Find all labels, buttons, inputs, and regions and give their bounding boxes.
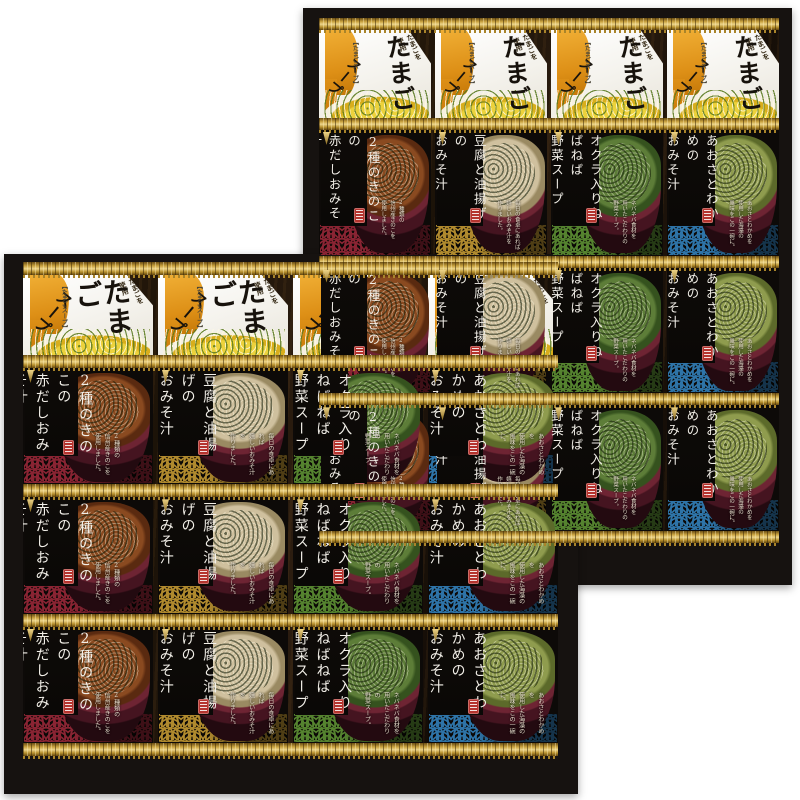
product-name: 2種のきのこの 赤だしおみそ汁 bbox=[23, 631, 95, 715]
product-description: 毎日の食卓にあれば 嬉しいおみそ汁を 作りました。 bbox=[494, 200, 520, 250]
red-seal-stamp bbox=[702, 346, 713, 361]
product-description: ネバネバ食材を 用いたこだわりの 野菜スープ。 bbox=[362, 433, 400, 480]
product-description: 2種類の 信州産きのこを 使用しました。 bbox=[378, 200, 404, 250]
red-seal-stamp bbox=[354, 208, 365, 223]
tamago-soup-row: 国産の たまごを 使用たまごスープ【たまごスープ】国産の たまごを 使用たまごス… bbox=[319, 30, 779, 118]
bracket-label: 【たまごスープ】 bbox=[582, 39, 591, 87]
gold-trim-band bbox=[319, 393, 779, 405]
miso-packet-akadashi-kinoko: 2種のきのこの 赤だしおみそ汁2種類の 信州産きのこを 使用しました。 bbox=[319, 130, 431, 256]
product-name: 2種のきのこの 赤だしおみそ汁 bbox=[319, 272, 382, 363]
bracket-label: 【たまごスープ】 bbox=[350, 39, 359, 87]
product-name: 豆腐と油揚げの おみそ汁 bbox=[158, 373, 219, 457]
product-description: 2種類の 信州産きのこを 使用しました。 bbox=[92, 562, 121, 609]
miso-packet-akadashi-kinoko: 2種のきのこの 赤だしおみそ汁2種類の 信州産きのこを 使用しました。 bbox=[23, 368, 153, 484]
red-seal-stamp bbox=[702, 483, 713, 498]
tamago-title: たまご bbox=[384, 33, 416, 113]
miso-packet-okra-nebaneba-yasai: オクラ入りねばねば 野菜スープネバネバ食材を 用いたこだわりの 野菜スープ。 bbox=[551, 405, 663, 531]
product-name: オクラ入りねばねば 野菜スープ bbox=[293, 373, 354, 457]
bracket-label: 【たまごスープ】 bbox=[698, 39, 707, 87]
product-name: 豆腐と油揚げの おみそ汁 bbox=[158, 502, 219, 586]
tamago-soup-packet: 国産の たまごを 使用たまごスープ【たまごスープ】 bbox=[23, 275, 153, 355]
gold-trim-band bbox=[319, 531, 779, 543]
miso-soup-row: 2種のきのこの 赤だしおみそ汁2種類の 信州産きのこを 使用しました。豆腐と油揚… bbox=[23, 497, 558, 613]
gold-trim-band bbox=[23, 355, 558, 368]
gold-trim-band bbox=[319, 118, 779, 130]
miso-packet-aosa-wakame: あおさとわかめの おみそ汁あおさとわかめを 使用した海藻の 風味をこの一碗に。 bbox=[667, 130, 779, 256]
tamago-title: たまご bbox=[500, 33, 532, 113]
red-seal-stamp bbox=[63, 569, 74, 584]
red-seal-stamp bbox=[63, 699, 74, 714]
miso-packet-tofu-aburaage: 豆腐と油揚げの おみそ汁毎日の食卓にあれば 嬉しいおみそ汁を 作りました。 bbox=[158, 627, 288, 743]
product-description: 毎日の食卓にあれば 嬉しいおみそ汁を 作りました。 bbox=[494, 476, 520, 526]
red-seal-stamp bbox=[468, 699, 479, 714]
tamago-title: たまご bbox=[616, 33, 648, 113]
miso-packet-aosa-wakame: あおさとわかめの おみそ汁あおさとわかめを 使用した海藻の 風味をこの一碗に。 bbox=[428, 627, 558, 743]
red-seal-stamp bbox=[198, 699, 209, 714]
red-seal-stamp bbox=[63, 440, 74, 455]
product-description: ネバネバ食材を 用いたこだわりの 野菜スープ。 bbox=[610, 200, 636, 250]
bracket-label: 【たまごスープ】 bbox=[59, 283, 68, 331]
red-seal-stamp bbox=[333, 569, 344, 584]
product-name: あおさとわかめの おみそ汁 bbox=[428, 631, 489, 715]
product-description: ネバネバ食材を 用いたこだわりの 野菜スープ。 bbox=[362, 692, 400, 739]
miso-packet-aosa-wakame: あおさとわかめの おみそ汁あおさとわかめを 使用した海藻の 風味をこの一碗に。 bbox=[667, 268, 779, 394]
freeze-dried-soup-gift-set-photo: 国産の たまごを 使用たまごスープ【たまごスープ】国産の たまごを 使用たまごス… bbox=[0, 0, 800, 800]
product-description: 毎日の食卓にあれば 嬉しいおみそ汁を 作りました。 bbox=[227, 433, 275, 480]
product-description: あおさとわかめを 使用した海藻の 風味をこの一碗に。 bbox=[497, 433, 545, 480]
miso-packet-tofu-aburaage: 豆腐と油揚げの おみそ汁毎日の食卓にあれば 嬉しいおみそ汁を 作りました。 bbox=[435, 130, 547, 256]
tamago-soup-packet: 国産の たまごを 使用たまごスープ【たまごスープ】 bbox=[551, 30, 663, 118]
gold-trim-band bbox=[319, 18, 779, 30]
miso-packet-okra-nebaneba-yasai: オクラ入りねばねば 野菜スープネバネバ食材を 用いたこだわりの 野菜スープ。 bbox=[551, 268, 663, 394]
miso-packet-okra-nebaneba-yasai: オクラ入りねばねば 野菜スープネバネバ食材を 用いたこだわりの 野菜スープ。 bbox=[293, 627, 423, 743]
product-description: あおさとわかめを 使用した海藻の 風味をこの一碗に。 bbox=[497, 692, 545, 739]
miso-packet-aosa-wakame: あおさとわかめの おみそ汁あおさとわかめを 使用した海藻の 風味をこの一碗に。 bbox=[667, 405, 779, 531]
miso-packet-tofu-aburaage: 豆腐と油揚げの おみそ汁毎日の食卓にあれば 嬉しいおみそ汁を 作りました。 bbox=[158, 497, 288, 613]
gold-trim-band bbox=[23, 262, 558, 275]
product-name: 2種のきのこの 赤だしおみそ汁 bbox=[23, 373, 95, 457]
tamago-soup-packet: 国産の たまごを 使用たまごスープ【たまごスープ】 bbox=[667, 30, 779, 118]
tamago-title: たまご bbox=[72, 277, 134, 355]
miso-packet-tofu-aburaage: 豆腐と油揚げの おみそ汁毎日の食卓にあれば 嬉しいおみそ汁を 作りました。 bbox=[158, 368, 288, 484]
red-seal-stamp bbox=[333, 440, 344, 455]
product-description: 2種類の 信州産きのこを 使用しました。 bbox=[378, 476, 404, 526]
red-seal-stamp bbox=[198, 569, 209, 584]
bracket-label: 【たまごスープ】 bbox=[194, 283, 203, 331]
gold-trim-band bbox=[23, 743, 558, 756]
product-name: あおさとわかめの おみそ汁 bbox=[428, 373, 489, 457]
product-description: あおさとわかめを 使用した海藻の 風味をこの一碗に。 bbox=[726, 200, 752, 250]
miso-packet-akadashi-kinoko: 2種のきのこの 赤だしおみそ汁2種類の 信州産きのこを 使用しました。 bbox=[23, 627, 153, 743]
red-seal-stamp bbox=[586, 346, 597, 361]
miso-soup-row: 2種のきのこの 赤だしおみそ汁2種類の 信州産きのこを 使用しました。豆腐と油揚… bbox=[319, 130, 779, 256]
red-seal-stamp bbox=[586, 208, 597, 223]
product-description: 2種類の 信州産きのこを 使用しました。 bbox=[92, 692, 121, 739]
product-description: ネバネバ食材を 用いたこだわりの 野菜スープ。 bbox=[610, 338, 636, 388]
product-name: オクラ入りねばねば 野菜スープ bbox=[293, 631, 354, 715]
product-description: 毎日の食卓にあれば 嬉しいおみそ汁を 作りました。 bbox=[227, 562, 275, 609]
miso-packet-okra-nebaneba-yasai: オクラ入りねばねば 野菜スープネバネバ食材を 用いたこだわりの 野菜スープ。 bbox=[551, 130, 663, 256]
red-seal-stamp bbox=[586, 483, 597, 498]
product-description: ネバネバ食材を 用いたこだわりの 野菜スープ。 bbox=[610, 476, 636, 526]
gold-trim-band bbox=[23, 614, 558, 627]
red-seal-stamp bbox=[468, 440, 479, 455]
red-seal-stamp bbox=[702, 208, 713, 223]
tamago-soup-packet: 国産の たまごを 使用たまごスープ【たまごスープ】 bbox=[319, 30, 431, 118]
red-seal-stamp bbox=[198, 440, 209, 455]
tamago-soup-packet: 国産の たまごを 使用たまごスープ【たまごスープ】 bbox=[158, 275, 288, 355]
tamago-soup-packet: 国産の たまごを 使用たまごスープ【たまごスープ】 bbox=[435, 30, 547, 118]
product-description: 2種類の 信州産きのこを 使用しました。 bbox=[92, 433, 121, 480]
product-name: 2種のきのこの 赤だしおみそ汁 bbox=[23, 502, 95, 586]
red-seal-stamp bbox=[470, 208, 481, 223]
miso-packet-akadashi-kinoko: 2種のきのこの 赤だしおみそ汁2種類の 信州産きのこを 使用しました。 bbox=[23, 497, 153, 613]
product-description: 毎日の食卓にあれば 嬉しいおみそ汁を 作りました。 bbox=[227, 692, 275, 739]
product-description: あおさとわかめを 使用した海藻の 風味をこの一碗に。 bbox=[726, 338, 752, 388]
product-description: ネバネバ食材を 用いたこだわりの 野菜スープ。 bbox=[362, 562, 400, 609]
red-seal-stamp bbox=[468, 569, 479, 584]
red-seal-stamp bbox=[333, 699, 344, 714]
miso-soup-row: 2種のきのこの 赤だしおみそ汁2種類の 信州産きのこを 使用しました。豆腐と油揚… bbox=[23, 627, 558, 743]
miso-packet-aosa-wakame: あおさとわかめの おみそ汁あおさとわかめを 使用した海藻の 風味をこの一碗に。 bbox=[428, 497, 558, 613]
tamago-title: たまご bbox=[207, 277, 269, 355]
tamago-title: たまご bbox=[732, 33, 764, 113]
product-name: 豆腐と油揚げの おみそ汁 bbox=[158, 631, 219, 715]
product-name: 2種のきのこの 赤だしおみそ汁 bbox=[319, 134, 382, 225]
bracket-label: 【たまごスープ】 bbox=[466, 39, 475, 87]
product-description: あおさとわかめを 使用した海藻の 風味をこの一碗に。 bbox=[497, 562, 545, 609]
gold-trim-band bbox=[23, 484, 558, 497]
product-description: あおさとわかめを 使用した海藻の 風味をこの一碗に。 bbox=[726, 476, 752, 526]
